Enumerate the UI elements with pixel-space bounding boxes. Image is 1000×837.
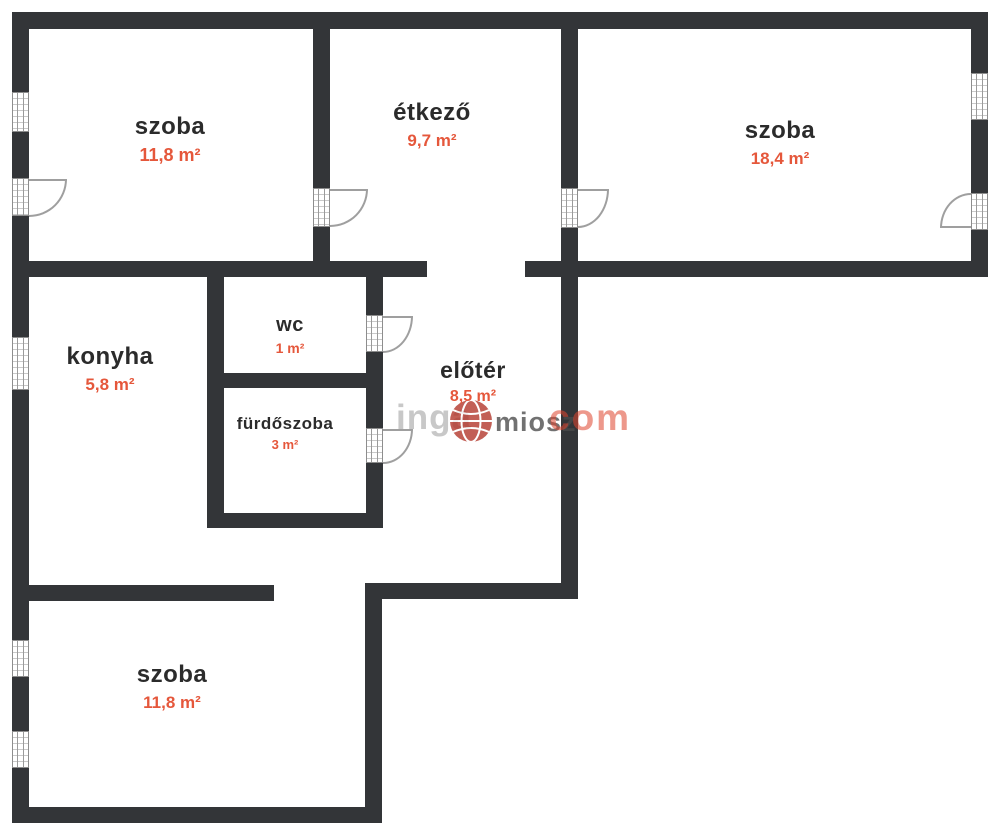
door-jamb-furdoszoba bbox=[366, 428, 383, 463]
wall-outer-left-5 bbox=[12, 677, 29, 731]
room-area: 3 m² bbox=[237, 437, 334, 452]
floor-plan: szoba 11,8 m² étkező 9,7 m² szoba 18,4 m… bbox=[0, 0, 1000, 837]
wall-outer-left-2 bbox=[12, 132, 29, 178]
wall-outer-right-1 bbox=[971, 12, 988, 73]
wall-szoba-b-right bbox=[365, 583, 382, 823]
door-jamb-wc bbox=[366, 315, 383, 352]
wall-outer-right-2 bbox=[971, 120, 988, 193]
wall-szoba-etkezo-lower bbox=[313, 227, 330, 261]
wall-wc-right-upper bbox=[366, 277, 383, 315]
room-label-szoba-topleft: szoba 11,8 m² bbox=[135, 114, 206, 166]
room-name: étkező bbox=[393, 100, 471, 125]
door-swing-icon-szoba-tl bbox=[29, 179, 67, 217]
door-jamb-szoba-tr-left bbox=[561, 188, 578, 228]
room-name: szoba bbox=[745, 118, 816, 143]
door-jamb-etkezo-left bbox=[313, 188, 330, 227]
room-area: 11,8 m² bbox=[137, 693, 208, 713]
wall-wc-furdo-divider bbox=[207, 373, 383, 388]
wall-outer-top bbox=[12, 12, 988, 29]
wall-szoba-etkezo-upper bbox=[313, 29, 330, 188]
room-label-etkezo: étkező 9,7 m² bbox=[393, 100, 471, 151]
wall-etkezo-szoba-tr-upper bbox=[561, 29, 578, 188]
window-symbol-szoba-b-1 bbox=[12, 640, 29, 677]
window-symbol-szoba-b-2 bbox=[12, 731, 29, 768]
room-name: fürdőszoba bbox=[237, 415, 334, 433]
door-swing-icon-wc bbox=[383, 316, 413, 353]
room-name: szoba bbox=[135, 114, 206, 139]
room-label-konyha: konyha 5,8 m² bbox=[66, 344, 153, 395]
room-label-szoba-bottom: szoba 11,8 m² bbox=[137, 662, 208, 713]
wall-wc-right-mid bbox=[366, 352, 383, 428]
wall-eloter-bottom bbox=[365, 583, 578, 599]
room-area: 5,8 m² bbox=[66, 375, 153, 395]
room-label-furdoszoba: fürdőszoba 3 m² bbox=[237, 415, 334, 452]
wall-outer-bottom bbox=[12, 807, 380, 823]
window-symbol-szoba-tr bbox=[971, 73, 988, 120]
wall-szoba-b-top bbox=[12, 585, 274, 601]
wall-outer-left-4 bbox=[12, 390, 29, 640]
room-label-wc: wc 1 m² bbox=[276, 315, 305, 356]
wall-wc-furdo-left bbox=[207, 277, 224, 528]
door-jamb-szoba-tl bbox=[12, 178, 29, 216]
room-area: 18,4 m² bbox=[745, 149, 816, 169]
watermark: inga miosz com bbox=[396, 394, 646, 446]
room-label-szoba-topright: szoba 18,4 m² bbox=[745, 118, 816, 169]
room-name: wc bbox=[276, 315, 305, 336]
door-swing-icon-etkezo-left bbox=[330, 189, 368, 227]
watermark-text-suffix: com bbox=[549, 397, 631, 439]
wall-furdo-bottom bbox=[207, 513, 383, 528]
room-label-eloter: előtér 8,5 m² bbox=[440, 358, 506, 406]
room-area: 9,7 m² bbox=[393, 131, 471, 151]
window-symbol-szoba-tl bbox=[12, 92, 29, 132]
room-name: szoba bbox=[137, 662, 208, 687]
door-jamb-szoba-tr-right bbox=[971, 193, 988, 230]
room-area: 1 m² bbox=[276, 340, 305, 356]
wall-outer-left-1 bbox=[12, 12, 29, 92]
window-symbol-konyha bbox=[12, 337, 29, 390]
wall-szoba-tr-bottom bbox=[525, 261, 988, 277]
door-swing-icon-szoba-tr-right bbox=[940, 193, 971, 228]
wall-szoba-tl-bottom bbox=[12, 261, 427, 277]
room-name: konyha bbox=[66, 344, 153, 369]
room-name: előtér bbox=[440, 358, 506, 382]
room-area: 8,5 m² bbox=[440, 388, 506, 406]
door-swing-icon-szoba-tr-left bbox=[578, 189, 609, 228]
room-area: 11,8 m² bbox=[135, 145, 206, 166]
